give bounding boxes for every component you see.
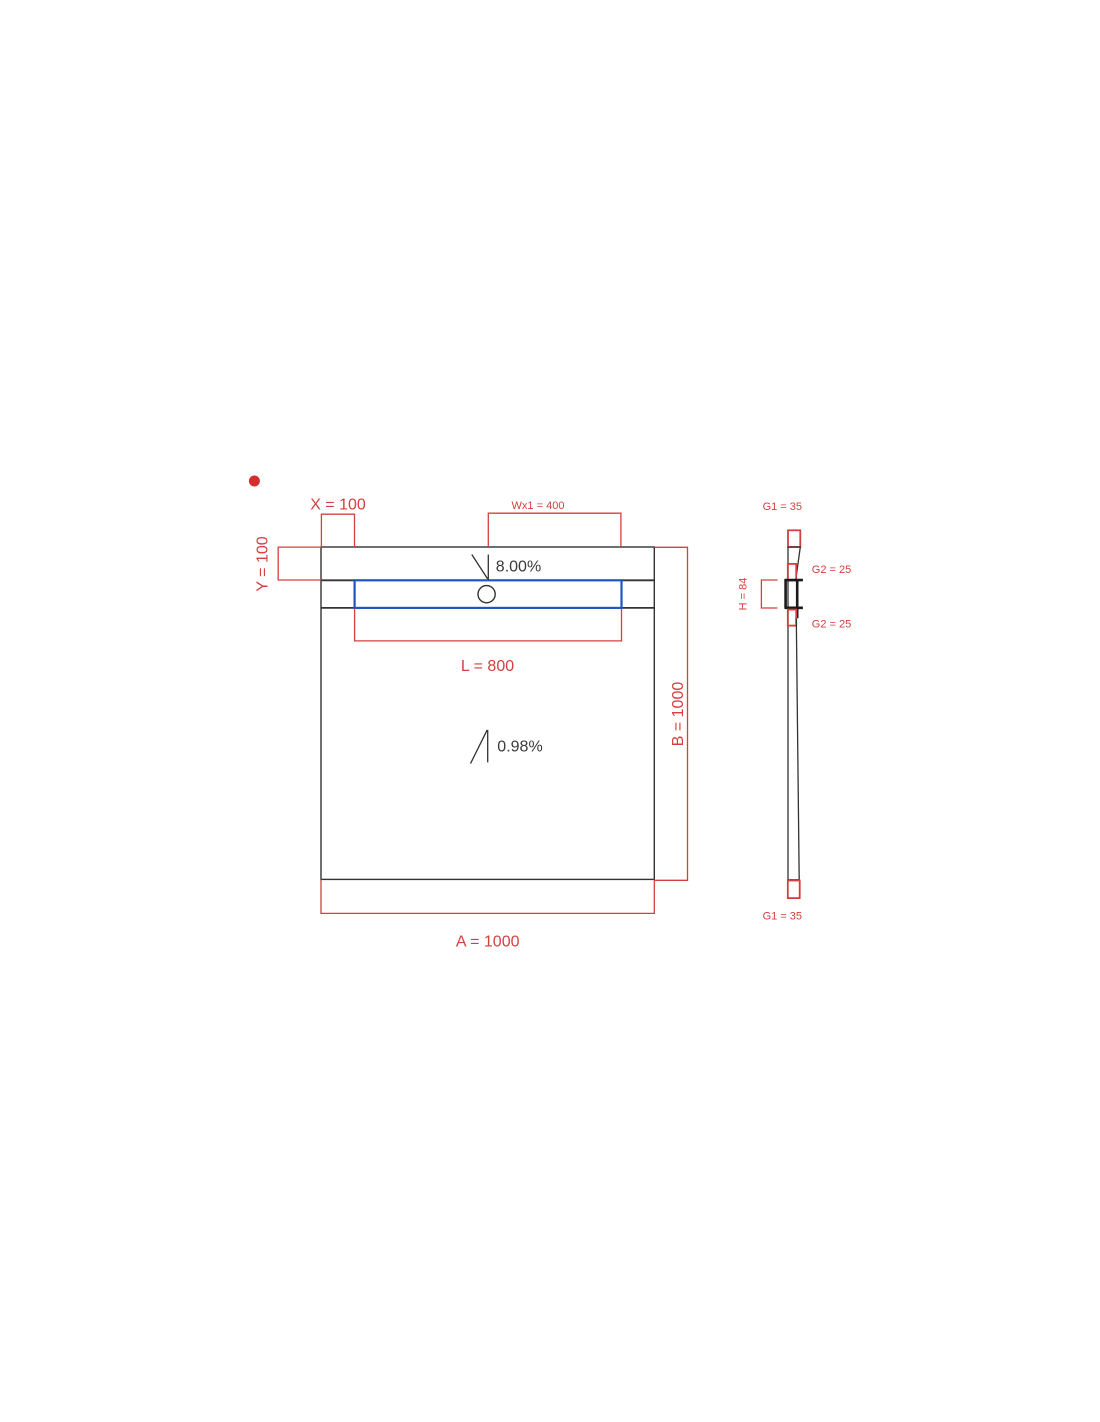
svg-text:A = 1000: A = 1000: [456, 934, 520, 951]
svg-text:Wx1 = 400: Wx1 = 400: [512, 500, 565, 512]
svg-text:B = 1000: B = 1000: [670, 682, 687, 747]
svg-text:Y = 100: Y = 100: [254, 536, 271, 591]
svg-text:G1 = 35: G1 = 35: [763, 501, 802, 513]
svg-text:G2 = 25: G2 = 25: [812, 564, 851, 576]
svg-text:G2 = 25: G2 = 25: [812, 618, 851, 630]
svg-text:G1 = 35: G1 = 35: [763, 911, 802, 923]
svg-text:H = 84: H = 84: [737, 578, 749, 611]
svg-text:0.98%: 0.98%: [497, 739, 542, 756]
svg-text:X = 100: X = 100: [310, 496, 366, 513]
svg-text:8.00%: 8.00%: [496, 559, 541, 576]
svg-text:L = 800: L = 800: [461, 658, 514, 675]
